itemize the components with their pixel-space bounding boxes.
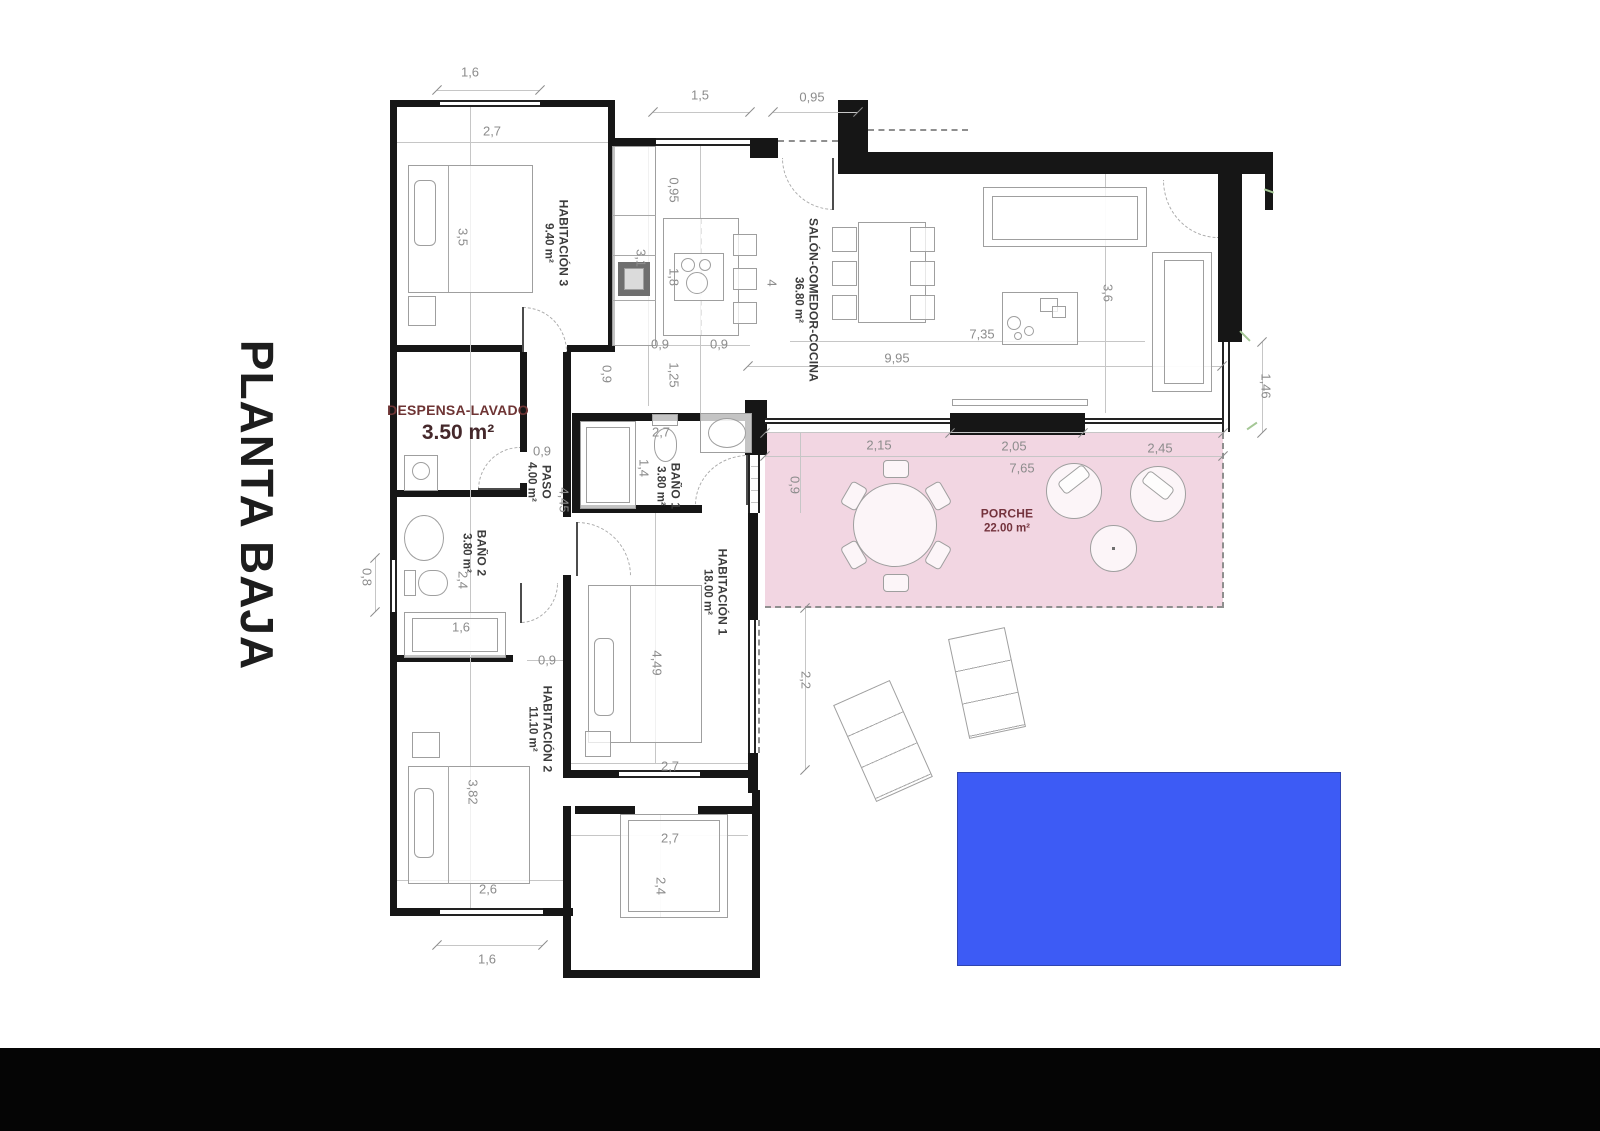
room-area: 11.10 m²	[525, 686, 539, 773]
room-label-porche: PORCHE22.00 m²	[981, 506, 1034, 535]
nightstand	[408, 296, 436, 326]
room-label-bano-1: BAÑO 13.80 m²	[653, 463, 682, 510]
dimension-label: 1,6	[452, 621, 470, 634]
room-label-despensa-lavado: DESPENSA-LAVADO3.50 m²	[387, 402, 529, 446]
pillow	[414, 788, 434, 858]
porch-chair	[883, 460, 909, 478]
toilet-tank	[404, 570, 416, 596]
door-arc	[523, 307, 567, 352]
dimension-label: 4,49	[651, 650, 664, 675]
wall-segment	[563, 806, 571, 978]
shower-inner	[586, 427, 630, 503]
dimension-label: 4	[766, 279, 779, 286]
window	[440, 100, 540, 107]
sink	[404, 515, 444, 561]
dining-chair	[910, 227, 935, 252]
room-name: PASO	[539, 462, 554, 502]
hairline	[790, 341, 1145, 342]
door-leaf	[478, 488, 520, 490]
burner	[686, 272, 708, 294]
room-label-habitacion-2: HABITACIÓN 211.10 m²	[525, 686, 554, 773]
dimension-label: 2,7	[661, 760, 679, 773]
window	[440, 908, 543, 916]
window-dashed	[758, 620, 762, 753]
sun-lounger	[833, 680, 933, 802]
sofa-cushion	[1164, 260, 1204, 384]
porch-edge-dashed	[765, 606, 1223, 610]
dimension-label: 2,15	[866, 439, 891, 452]
plan-title: PLANTA BAJA	[230, 340, 284, 670]
room-name: SALÓN-COMEDOR-COCINA	[806, 218, 821, 382]
room-name: BAÑO 2	[474, 530, 489, 577]
porch-edge-dashed	[1222, 433, 1226, 608]
stool	[733, 234, 757, 256]
dimension-label: 1,6	[461, 66, 479, 79]
stool	[733, 302, 757, 324]
dimension-label: 3,1	[635, 249, 648, 267]
room-area: 18.00 m²	[700, 549, 714, 636]
window	[748, 455, 760, 513]
dimension-label: 7,35	[969, 328, 994, 341]
sink	[708, 418, 746, 448]
dimension-label: 0,9	[601, 365, 614, 383]
bed-line	[630, 585, 631, 743]
bed-line	[448, 166, 449, 292]
room-area: 3.80 m²	[653, 463, 667, 510]
wall-segment	[390, 345, 523, 352]
wall-segment	[540, 100, 615, 107]
dimension-label: 1,4	[638, 459, 651, 477]
hairline	[397, 142, 608, 143]
kitchen-counter	[612, 146, 656, 346]
sliding-door-dashed	[778, 140, 838, 144]
wall-segment	[752, 790, 760, 978]
room-name: HABITACIÓN 3	[556, 200, 571, 287]
dimension-label: 1,46	[1260, 373, 1273, 398]
hairline	[437, 90, 540, 91]
door-arc	[478, 447, 520, 490]
wall-segment	[390, 490, 527, 497]
hairline	[765, 456, 1223, 457]
dimension-label: 2,4	[655, 877, 668, 895]
room-label-salon-comedor-cocina: SALÓN-COMEDOR-COCINA36.80 m²	[791, 218, 820, 382]
counter-line	[612, 300, 656, 301]
room-label-paso: PASO4.00 m²	[524, 462, 553, 502]
door-leaf	[576, 522, 578, 576]
dimension-label: 0,9	[651, 338, 669, 351]
wall-segment	[1218, 174, 1242, 342]
dimension-label: 0,9	[533, 445, 551, 458]
dining-chair	[910, 295, 935, 320]
room-label-habitacion-1: HABITACIÓN 118.00 m²	[700, 549, 729, 636]
door-arc	[695, 455, 748, 505]
door-arc	[1163, 180, 1218, 238]
door-leaf	[522, 307, 524, 352]
wall-segment	[563, 970, 760, 978]
dining-chair	[832, 295, 857, 320]
toilet-bowl	[418, 570, 448, 596]
door-leaf	[746, 455, 748, 505]
hairline	[751, 490, 758, 491]
dimension-label: 1,5	[691, 89, 709, 102]
wall-segment	[845, 152, 1273, 174]
hairline	[437, 945, 543, 946]
decor-circle	[1024, 326, 1034, 336]
dimension-label: 1,25	[668, 362, 681, 387]
dimension-label: 3,6	[1102, 284, 1115, 302]
dimension-label: 2,05	[1001, 440, 1026, 453]
decor-circle	[1007, 316, 1021, 330]
room-label-habitacion-3: HABITACIÓN 39.40 m²	[541, 200, 570, 287]
dimension-label: 3,5	[457, 228, 470, 246]
floor-plan-page: PLANTA BAJA 1,62,73,51,50,950,953,11,840…	[0, 0, 1600, 1131]
door-leaf	[520, 583, 522, 623]
wall-segment	[572, 413, 580, 513]
washer-drum	[412, 462, 430, 480]
room-name: BAÑO 1	[668, 463, 683, 510]
dimension-label: 1,8	[668, 268, 681, 286]
hairline	[751, 478, 758, 479]
wall-segment	[563, 575, 571, 663]
wall-segment	[748, 513, 758, 620]
window	[765, 418, 950, 424]
plant-mark	[1247, 422, 1258, 431]
window	[619, 770, 700, 778]
door-arc	[577, 522, 631, 576]
wall-segment	[390, 908, 440, 916]
door-leaf	[832, 158, 834, 210]
pillow	[594, 638, 614, 716]
window	[748, 620, 756, 753]
wall-segment	[563, 770, 619, 778]
dimension-label: 0,8	[361, 568, 374, 586]
bottom-black-bar	[0, 1048, 1600, 1131]
dimension-label: 0,9	[789, 476, 802, 494]
burner	[699, 259, 711, 271]
burner	[681, 258, 695, 272]
wall-segment	[698, 806, 760, 814]
wall-segment	[563, 663, 571, 770]
hairline	[773, 112, 858, 113]
canopy-dashed	[868, 129, 968, 133]
wall-segment	[567, 345, 615, 352]
bed-line	[448, 766, 449, 884]
hairline	[375, 558, 376, 612]
table-dot	[1112, 547, 1115, 550]
decor-circle	[1014, 332, 1022, 340]
dimension-label: 2,6	[479, 883, 497, 896]
wall-segment	[750, 138, 778, 158]
dimension-label: 1,6	[478, 953, 496, 966]
room-name: HABITACIÓN 2	[540, 686, 555, 773]
swimming-pool	[957, 772, 1341, 966]
dining-chair	[910, 261, 935, 286]
sink-basin	[624, 268, 644, 290]
room-area: 9.40 m²	[541, 200, 555, 287]
dimension-label: 2,7	[661, 832, 679, 845]
hairline	[571, 763, 748, 764]
hairline	[751, 502, 758, 503]
dimension-label: 4,45	[558, 487, 571, 512]
room-area: 22.00 m²	[981, 521, 1034, 535]
stool	[733, 268, 757, 290]
tv-sideboard	[952, 399, 1088, 406]
dimension-label: 2,7	[483, 125, 501, 138]
hairline	[800, 433, 801, 513]
dimension-label: 3,82	[467, 779, 480, 804]
window	[1085, 418, 1222, 424]
dimension-label: 2,7	[652, 426, 670, 439]
hairline	[653, 112, 750, 113]
dimension-label: 9,95	[884, 352, 909, 365]
dimension-label: 2,45	[1147, 442, 1172, 455]
room-area: 3.50 m²	[387, 420, 529, 446]
nightstand	[585, 731, 611, 757]
room-name: HABITACIÓN 1	[715, 549, 730, 636]
door-arc	[520, 583, 558, 623]
wall-segment	[608, 138, 656, 146]
counter-line	[612, 215, 656, 216]
dimension-label: 2,2	[800, 671, 813, 689]
wall-segment	[390, 100, 440, 107]
dimension-label: 0,95	[668, 177, 681, 202]
sun-lounger	[948, 627, 1026, 739]
dimension-label: 0,9	[538, 654, 556, 667]
window	[390, 560, 397, 612]
room-area: 4.00 m²	[524, 462, 538, 502]
pillow	[414, 180, 436, 246]
decor	[1052, 306, 1066, 318]
hairline	[751, 466, 758, 467]
door-arc	[782, 158, 834, 210]
room-name: PORCHE	[981, 506, 1034, 521]
window	[1222, 342, 1230, 432]
porch-chair	[883, 574, 909, 592]
nightstand	[412, 732, 440, 758]
hairline	[765, 432, 1223, 433]
porch-round-table	[853, 483, 937, 567]
dining-chair	[832, 227, 857, 252]
room-label-bano-2: BAÑO 23.80 m²	[459, 530, 488, 577]
sofa-cushion	[992, 196, 1138, 240]
window	[656, 138, 750, 146]
room-area: 36.80 m²	[791, 218, 805, 382]
wall-segment	[575, 806, 635, 814]
dimension-label: 0,95	[799, 91, 824, 104]
dimension-label: 0,9	[710, 338, 728, 351]
wall-segment	[748, 753, 758, 793]
room-name: DESPENSA-LAVADO	[387, 402, 529, 420]
dimension-label: 7,65	[1009, 462, 1034, 475]
dining-chair	[832, 261, 857, 286]
room-area: 3.80 m²	[459, 530, 473, 577]
